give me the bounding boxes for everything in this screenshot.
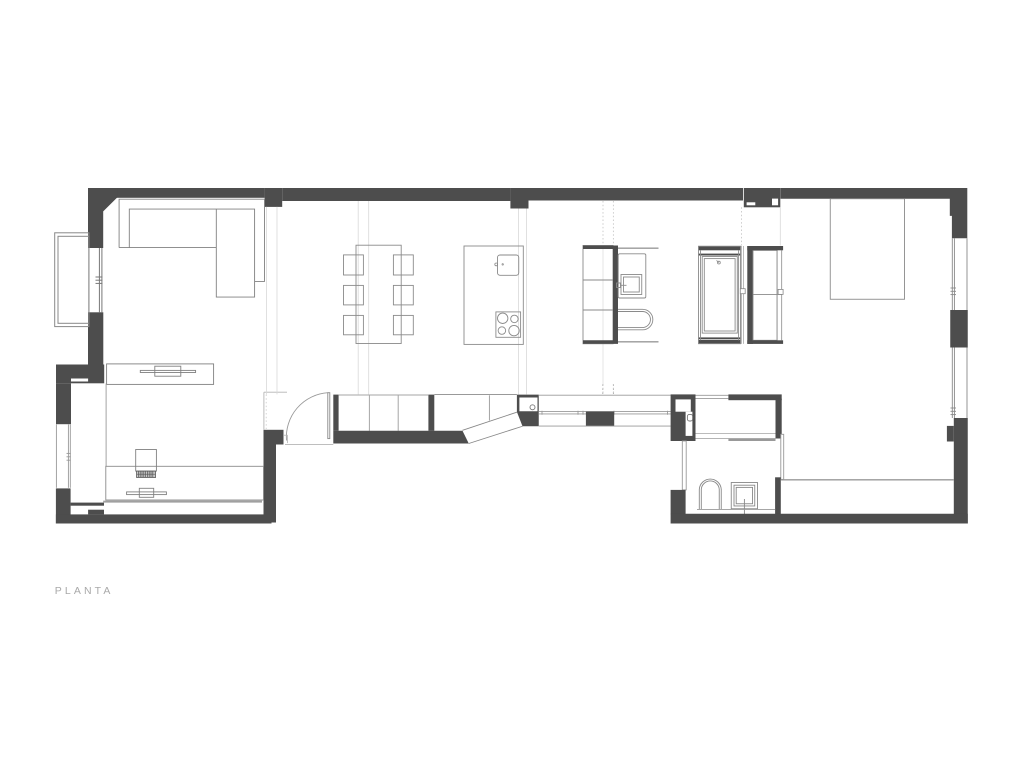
svg-text:PLANTA: PLANTA bbox=[55, 585, 114, 597]
